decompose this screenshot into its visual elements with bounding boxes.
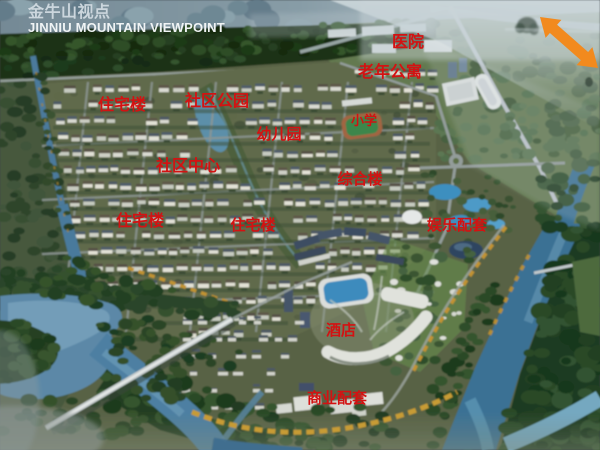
svg-text:幼儿园: 幼儿园 — [256, 125, 301, 143]
svg-text:JINNIU MOUNTAIN VIEWPOINT: JINNIU MOUNTAIN VIEWPOINT — [28, 20, 225, 35]
svg-text:商业配套: 商业配套 — [307, 389, 368, 407]
svg-text:金牛山视点: 金牛山视点 — [27, 2, 111, 21]
svg-text:住宅楼: 住宅楼 — [230, 216, 275, 234]
svg-text:社区中心: 社区中心 — [155, 156, 220, 175]
svg-text:综合楼: 综合楼 — [337, 170, 382, 188]
svg-text:老年公寓: 老年公寓 — [357, 62, 422, 81]
svg-text:娱乐配套: 娱乐配套 — [427, 216, 488, 234]
svg-text:小学: 小学 — [351, 113, 377, 128]
svg-text:酒店: 酒店 — [326, 321, 356, 339]
svg-text:医院: 医院 — [392, 32, 424, 51]
svg-text:住宅楼: 住宅楼 — [116, 211, 164, 230]
svg-text:社区公园: 社区公园 — [184, 91, 249, 110]
svg-text:住宅楼: 住宅楼 — [98, 95, 146, 114]
